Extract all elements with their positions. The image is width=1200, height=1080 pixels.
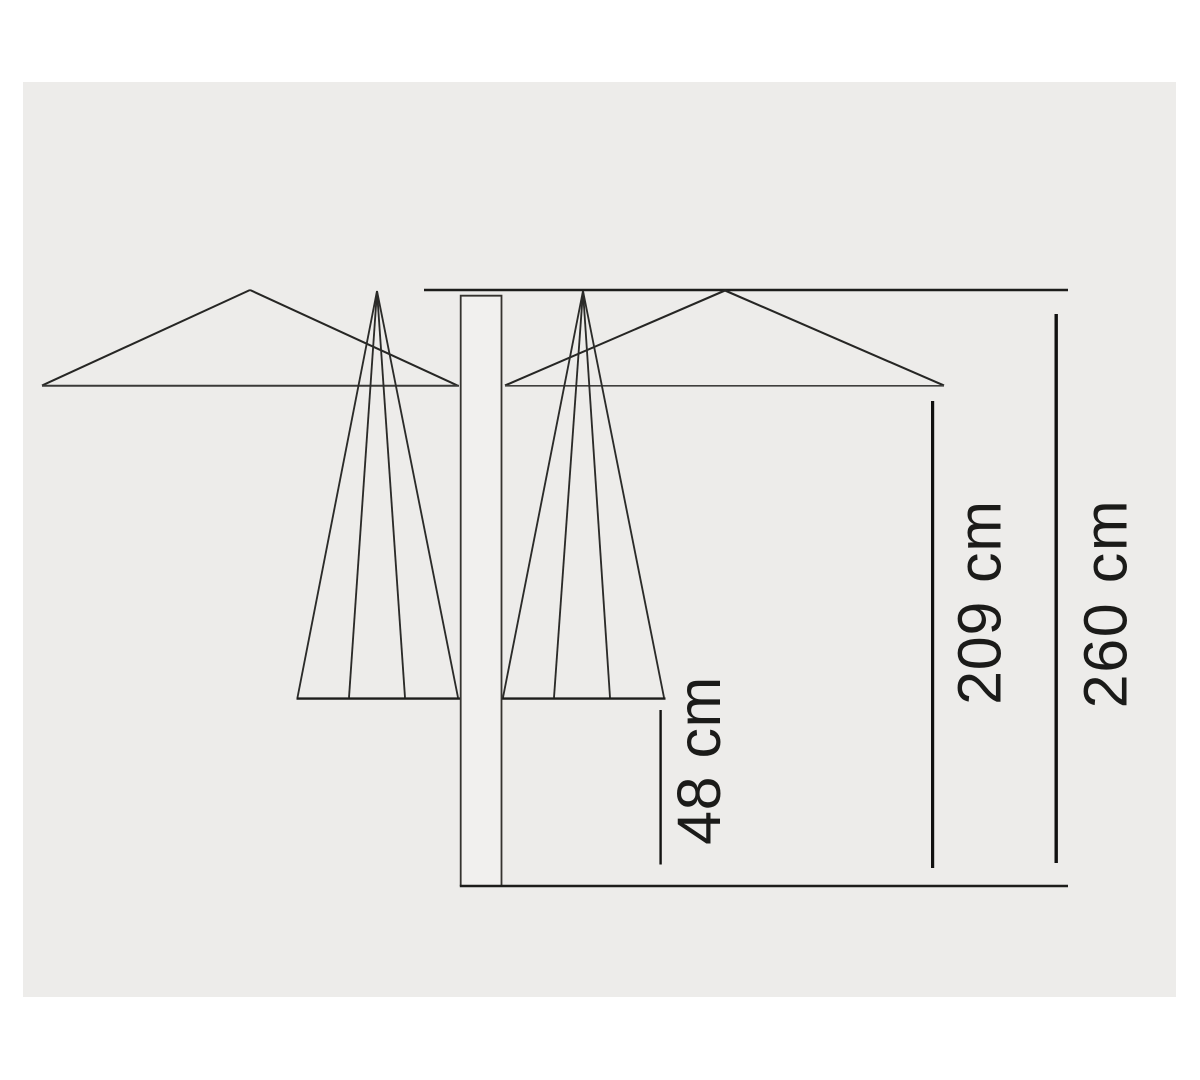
svg-text:48 cm: 48 cm [665,676,733,845]
svg-text:260 cm: 260 cm [1072,499,1140,709]
svg-text:209 cm: 209 cm [946,500,1014,705]
